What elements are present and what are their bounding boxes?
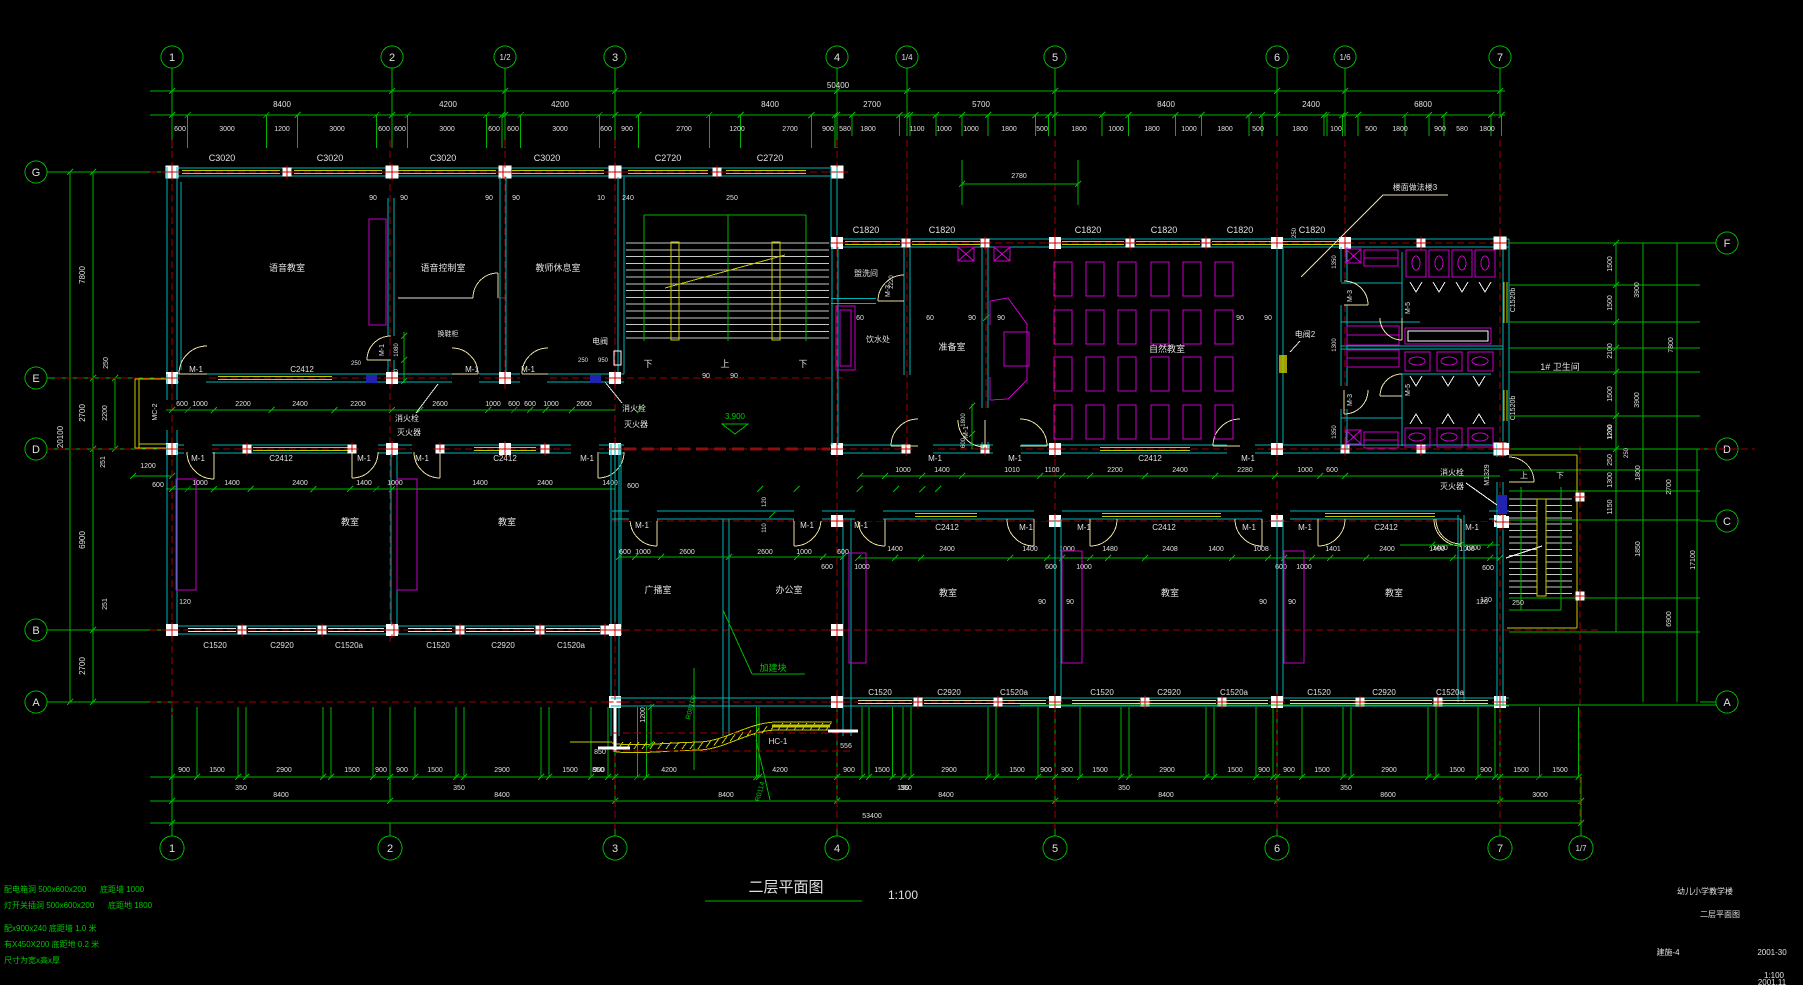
- svg-text:上: 上: [1520, 471, 1528, 480]
- svg-text:120: 120: [1480, 597, 1492, 604]
- svg-text:6: 6: [1274, 843, 1280, 855]
- svg-text:4: 4: [834, 843, 840, 855]
- svg-text:C2412: C2412: [269, 454, 293, 463]
- svg-text:3000: 3000: [1532, 792, 1548, 799]
- svg-text:C1520a: C1520a: [335, 641, 364, 650]
- svg-text:M-1: M-1: [1008, 454, 1022, 463]
- svg-text:1300: 1300: [1332, 338, 1338, 352]
- svg-text:M-1: M-1: [1242, 523, 1256, 532]
- svg-text:1500: 1500: [1314, 767, 1330, 774]
- svg-text:350: 350: [235, 785, 247, 792]
- svg-text:1100: 1100: [1044, 467, 1059, 474]
- svg-text:5: 5: [1052, 843, 1058, 855]
- svg-text:C2720: C2720: [757, 153, 784, 163]
- svg-text:251: 251: [100, 456, 107, 468]
- svg-text:1300: 1300: [1607, 472, 1614, 488]
- svg-text:D: D: [1723, 444, 1731, 456]
- svg-text:350: 350: [1118, 785, 1130, 792]
- svg-text:350: 350: [1340, 785, 1352, 792]
- svg-text:底距地 1800: 底距地 1800: [108, 900, 153, 910]
- svg-text:250: 250: [1292, 227, 1298, 238]
- svg-text:250: 250: [726, 195, 738, 202]
- svg-text:尺寸为宽x高x厚: 尺寸为宽x高x厚: [4, 955, 60, 965]
- svg-text:1000: 1000: [1465, 545, 1481, 552]
- svg-text:1400: 1400: [224, 480, 240, 487]
- svg-text:2600: 2600: [432, 401, 448, 408]
- svg-text:4200: 4200: [439, 100, 457, 109]
- svg-text:600: 600: [174, 126, 186, 133]
- svg-text:50400: 50400: [827, 81, 850, 90]
- svg-text:2200: 2200: [102, 405, 109, 421]
- svg-text:1000: 1000: [854, 564, 870, 571]
- svg-text:1000: 1000: [895, 467, 911, 474]
- svg-text:120: 120: [762, 496, 768, 507]
- svg-text:C1820: C1820: [853, 225, 880, 235]
- svg-text:C2920: C2920: [270, 641, 294, 650]
- svg-text:C1520: C1520: [203, 641, 227, 650]
- svg-text:850: 850: [592, 767, 604, 774]
- svg-text:3900: 3900: [1634, 282, 1641, 298]
- svg-text:1/6: 1/6: [1339, 53, 1351, 62]
- svg-text:1400: 1400: [472, 480, 488, 487]
- svg-text:楼面做法楼3: 楼面做法楼3: [1393, 182, 1438, 192]
- svg-text:M-1: M-1: [963, 426, 970, 438]
- svg-text:教室: 教室: [1385, 587, 1403, 598]
- svg-text:C2412: C2412: [1138, 454, 1162, 463]
- svg-text:M-1: M-1: [415, 454, 429, 463]
- svg-text:1200: 1200: [640, 707, 647, 723]
- svg-text:580: 580: [1456, 126, 1468, 133]
- svg-text:教室: 教室: [341, 516, 359, 527]
- svg-text:600: 600: [961, 437, 967, 448]
- svg-text:F: F: [1724, 238, 1731, 250]
- svg-text:换鞋柜: 换鞋柜: [438, 329, 459, 338]
- svg-text:900: 900: [621, 126, 633, 133]
- svg-text:3000: 3000: [219, 126, 235, 133]
- svg-text:900: 900: [1040, 767, 1052, 774]
- svg-text:1500: 1500: [209, 767, 225, 774]
- svg-text:3.900: 3.900: [725, 412, 746, 421]
- svg-text:2900: 2900: [1381, 767, 1397, 774]
- svg-text:M-1: M-1: [854, 521, 868, 530]
- svg-text:90: 90: [730, 373, 738, 380]
- svg-text:20100: 20100: [56, 425, 65, 448]
- svg-text:1: 1: [169, 843, 175, 855]
- svg-text:教师休息室: 教师休息室: [535, 262, 580, 273]
- svg-text:1:100: 1:100: [888, 888, 918, 902]
- svg-text:900: 900: [1480, 767, 1492, 774]
- svg-text:8400: 8400: [273, 100, 291, 109]
- svg-text:4200: 4200: [772, 767, 788, 774]
- svg-text:2400: 2400: [537, 480, 553, 487]
- svg-text:M1329: M1329: [1484, 464, 1491, 486]
- svg-text:配x900x240 底距墙 1.0 米: 配x900x240 底距墙 1.0 米: [4, 923, 96, 933]
- svg-text:1200: 1200: [729, 126, 745, 133]
- svg-text:1400: 1400: [1022, 546, 1038, 553]
- svg-text:建施-4: 建施-4: [1656, 947, 1680, 957]
- svg-text:600: 600: [508, 401, 520, 408]
- svg-text:灯开关插洞 500x600x200: 灯开关插洞 500x600x200: [4, 900, 95, 910]
- svg-text:1800: 1800: [1292, 126, 1308, 133]
- svg-text:消火栓: 消火栓: [395, 413, 419, 423]
- svg-text:8400: 8400: [1158, 792, 1174, 799]
- svg-text:7: 7: [1497, 843, 1503, 855]
- svg-text:4200: 4200: [661, 767, 677, 774]
- svg-text:2: 2: [389, 52, 395, 64]
- svg-text:幼儿小学教学楼: 幼儿小学教学楼: [1677, 886, 1733, 896]
- svg-text:2780: 2780: [1011, 173, 1027, 180]
- svg-text:90: 90: [1066, 599, 1074, 606]
- svg-text:盥洗间: 盥洗间: [854, 268, 878, 278]
- svg-text:有X450X200 底距地 0.2 米: 有X450X200 底距地 0.2 米: [4, 939, 99, 949]
- svg-text:C1820: C1820: [1075, 225, 1102, 235]
- svg-text:2700: 2700: [78, 404, 87, 422]
- svg-text:C2920: C2920: [1372, 688, 1396, 697]
- svg-text:150: 150: [897, 785, 909, 792]
- svg-text:6: 6: [1274, 52, 1280, 64]
- svg-text:灭火器: 灭火器: [397, 428, 421, 437]
- svg-text:1400: 1400: [934, 467, 950, 474]
- svg-text:E: E: [32, 373, 39, 385]
- svg-text:1500: 1500: [427, 767, 443, 774]
- svg-text:7800: 7800: [78, 266, 87, 284]
- svg-text:600: 600: [627, 483, 639, 490]
- svg-text:M-1: M-1: [800, 521, 814, 530]
- svg-text:2700: 2700: [782, 126, 798, 133]
- svg-text:900: 900: [1283, 767, 1295, 774]
- svg-text:2900: 2900: [494, 767, 510, 774]
- svg-text:C3020: C3020: [209, 153, 236, 163]
- svg-text:556: 556: [840, 743, 852, 750]
- svg-text:自然教室: 自然教室: [1149, 343, 1185, 354]
- svg-text:C1520a: C1520a: [557, 641, 586, 650]
- svg-text:G: G: [32, 167, 41, 179]
- svg-text:1000: 1000: [192, 401, 208, 408]
- svg-text:100: 100: [1330, 126, 1342, 133]
- svg-text:1# 卫生间: 1# 卫生间: [1540, 361, 1580, 372]
- svg-text:C1820: C1820: [1151, 225, 1178, 235]
- svg-text:底距墙 1000: 底距墙 1000: [100, 884, 145, 894]
- svg-text:M-3: M-3: [1347, 290, 1354, 302]
- svg-text:90: 90: [968, 315, 976, 322]
- svg-text:饮水处: 饮水处: [866, 334, 890, 344]
- svg-text:M-1: M-1: [379, 344, 386, 356]
- svg-text:2200: 2200: [350, 401, 366, 408]
- svg-text:M-1: M-1: [1019, 523, 1033, 532]
- svg-text:C1520b: C1520b: [1510, 396, 1517, 421]
- svg-text:1500: 1500: [1513, 767, 1529, 774]
- svg-text:1150: 1150: [1607, 499, 1614, 514]
- svg-text:950: 950: [598, 358, 609, 364]
- svg-text:M-1: M-1: [1465, 523, 1479, 532]
- svg-text:2400: 2400: [1172, 467, 1188, 474]
- svg-text:灭火器: 灭火器: [624, 420, 648, 429]
- svg-text:1500: 1500: [1009, 767, 1025, 774]
- svg-text:C2412: C2412: [1374, 523, 1398, 532]
- svg-text:二层平面图: 二层平面图: [748, 879, 823, 896]
- svg-text:M-3: M-3: [1347, 394, 1354, 406]
- svg-text:HC-1: HC-1: [769, 737, 788, 746]
- svg-text:1010: 1010: [1004, 467, 1020, 474]
- svg-text:250: 250: [351, 361, 362, 367]
- svg-text:8400: 8400: [1157, 100, 1175, 109]
- svg-text:1500: 1500: [1552, 767, 1568, 774]
- svg-text:1400: 1400: [356, 480, 372, 487]
- svg-text:6800: 6800: [1414, 100, 1432, 109]
- svg-text:500: 500: [1036, 126, 1048, 133]
- svg-text:1000: 1000: [963, 126, 979, 133]
- svg-text:下: 下: [643, 359, 652, 369]
- svg-text:8400: 8400: [761, 100, 779, 109]
- svg-text:90: 90: [369, 195, 377, 202]
- svg-text:900: 900: [843, 767, 855, 774]
- svg-text:M-1: M-1: [1077, 523, 1091, 532]
- svg-text:C1520b: C1520b: [1510, 288, 1517, 313]
- svg-text:1800: 1800: [1144, 126, 1160, 133]
- svg-text:1401: 1401: [1325, 546, 1341, 553]
- svg-text:2200: 2200: [1107, 467, 1123, 474]
- svg-text:240: 240: [622, 195, 634, 202]
- svg-text:B: B: [32, 625, 39, 637]
- svg-text:语音控制室: 语音控制室: [420, 262, 465, 273]
- svg-text:C1520: C1520: [1090, 688, 1114, 697]
- svg-text:1400: 1400: [1208, 546, 1224, 553]
- svg-text:6900: 6900: [78, 531, 87, 549]
- svg-text:C1820: C1820: [1227, 225, 1254, 235]
- svg-text:1500: 1500: [1607, 256, 1614, 272]
- svg-text:A: A: [32, 697, 40, 709]
- svg-text:90: 90: [1259, 599, 1267, 606]
- svg-text:90: 90: [512, 195, 520, 202]
- svg-text:1/7: 1/7: [1575, 844, 1587, 853]
- svg-text:900: 900: [822, 126, 834, 133]
- svg-text:3: 3: [612, 52, 618, 64]
- svg-text:500: 500: [1365, 126, 1377, 133]
- svg-text:C1520a: C1520a: [1220, 688, 1249, 697]
- svg-text:C1520: C1520: [426, 641, 450, 650]
- svg-text:C1520a: C1520a: [1436, 688, 1465, 697]
- svg-text:C2720: C2720: [655, 153, 682, 163]
- svg-text:C1820: C1820: [929, 225, 956, 235]
- svg-text:MC-2: MC-2: [152, 403, 159, 420]
- svg-text:办公室: 办公室: [775, 584, 802, 595]
- svg-text:2400: 2400: [1379, 546, 1395, 553]
- svg-text:2001.11: 2001.11: [1758, 978, 1787, 985]
- svg-text:10: 10: [597, 195, 605, 202]
- svg-text:1800: 1800: [860, 126, 876, 133]
- svg-text:1400: 1400: [602, 480, 618, 487]
- svg-text:C2920: C2920: [1157, 688, 1181, 697]
- svg-text:1500: 1500: [1607, 386, 1614, 402]
- svg-text:C1520: C1520: [868, 688, 892, 697]
- svg-text:900: 900: [375, 767, 387, 774]
- svg-text:M-1: M-1: [635, 521, 649, 530]
- svg-text:1400: 1400: [1432, 545, 1448, 552]
- svg-text:1/4: 1/4: [901, 53, 913, 62]
- svg-text:1200: 1200: [1608, 425, 1614, 439]
- svg-text:60: 60: [856, 315, 864, 322]
- svg-text:M-1: M-1: [928, 454, 942, 463]
- svg-text:电阀: 电阀: [592, 336, 608, 346]
- svg-text:7800: 7800: [1668, 337, 1675, 353]
- svg-text:2600: 2600: [679, 549, 695, 556]
- svg-text:灭火器: 灭火器: [1440, 482, 1464, 491]
- svg-text:600: 600: [1326, 467, 1338, 474]
- svg-text:1800: 1800: [1479, 126, 1495, 133]
- svg-text:M-1: M-1: [191, 454, 205, 463]
- svg-text:1200: 1200: [140, 463, 156, 470]
- svg-text:5700: 5700: [972, 100, 990, 109]
- svg-text:850: 850: [594, 749, 606, 756]
- svg-text:2408: 2408: [1162, 546, 1178, 553]
- svg-text:1000: 1000: [1108, 126, 1124, 133]
- svg-text:600: 600: [507, 126, 519, 133]
- svg-text:M-1: M-1: [1241, 454, 1255, 463]
- svg-text:3: 3: [612, 843, 618, 855]
- svg-text:2: 2: [387, 843, 393, 855]
- svg-text:600: 600: [524, 401, 536, 408]
- svg-text:C1820: C1820: [1299, 225, 1326, 235]
- svg-text:1800: 1800: [1001, 126, 1017, 133]
- svg-text:250: 250: [1607, 454, 1614, 466]
- svg-text:1000: 1000: [543, 401, 559, 408]
- svg-text:90: 90: [1236, 315, 1244, 322]
- svg-text:教室: 教室: [498, 516, 516, 527]
- svg-text:1500: 1500: [1092, 767, 1108, 774]
- svg-text:1500: 1500: [1607, 295, 1614, 311]
- svg-text:5: 5: [1052, 52, 1058, 64]
- svg-text:900: 900: [1061, 767, 1073, 774]
- svg-text:580: 580: [839, 126, 851, 133]
- svg-text:250: 250: [103, 357, 110, 369]
- svg-text:C2920: C2920: [937, 688, 961, 697]
- svg-text:C3020: C3020: [317, 153, 344, 163]
- svg-text:M-5: M-5: [1405, 384, 1412, 396]
- svg-text:4: 4: [834, 52, 840, 64]
- svg-text:900: 900: [1258, 767, 1270, 774]
- svg-text:1500: 1500: [562, 767, 578, 774]
- svg-text:1008: 1008: [1253, 546, 1269, 553]
- svg-text:110: 110: [762, 523, 768, 533]
- svg-text:1480: 1480: [1102, 546, 1118, 553]
- svg-text:1500: 1500: [1449, 767, 1465, 774]
- svg-text:8400: 8400: [938, 792, 954, 799]
- svg-text:准备室: 准备室: [938, 341, 965, 352]
- svg-text:6900: 6900: [1666, 611, 1673, 627]
- svg-text:1800: 1800: [1635, 465, 1642, 481]
- svg-text:教室: 教室: [939, 587, 957, 598]
- svg-text:4200: 4200: [551, 100, 569, 109]
- svg-text:2200: 2200: [235, 401, 251, 408]
- svg-text:2001-30: 2001-30: [1757, 948, 1787, 957]
- svg-text:8400: 8400: [494, 792, 510, 799]
- svg-text:2280: 2280: [1237, 467, 1253, 474]
- svg-text:1000: 1000: [1181, 126, 1197, 133]
- svg-text:2400: 2400: [939, 546, 955, 553]
- svg-text:251: 251: [102, 598, 109, 610]
- svg-text:加建块: 加建块: [759, 662, 786, 673]
- svg-text:90: 90: [1038, 599, 1046, 606]
- svg-text:1/2: 1/2: [499, 53, 511, 62]
- svg-text:120: 120: [179, 599, 191, 606]
- svg-text:90: 90: [702, 373, 710, 380]
- svg-text:A: A: [1723, 697, 1731, 709]
- svg-text:M-1: M-1: [189, 365, 203, 374]
- svg-text:1500: 1500: [344, 767, 360, 774]
- svg-text:1000: 1000: [387, 480, 403, 487]
- svg-text:2400: 2400: [292, 401, 308, 408]
- svg-text:1500: 1500: [874, 767, 890, 774]
- svg-text:2600: 2600: [576, 401, 592, 408]
- svg-text:1000: 1000: [485, 401, 501, 408]
- svg-text:1400: 1400: [887, 546, 903, 553]
- svg-text:1800: 1800: [1392, 126, 1408, 133]
- svg-text:C2412: C2412: [935, 523, 959, 532]
- svg-text:90: 90: [1288, 599, 1296, 606]
- svg-text:600: 600: [378, 126, 390, 133]
- svg-text:1500: 1500: [1227, 767, 1243, 774]
- svg-text:8400: 8400: [273, 792, 289, 799]
- svg-text:1100: 1100: [909, 126, 924, 133]
- svg-text:2700: 2700: [676, 126, 692, 133]
- svg-text:1800: 1800: [961, 413, 967, 427]
- svg-text:250: 250: [578, 358, 589, 364]
- svg-text:下: 下: [798, 359, 807, 369]
- svg-text:C3020: C3020: [430, 153, 457, 163]
- svg-text:60: 60: [926, 315, 934, 322]
- svg-text:上: 上: [720, 359, 729, 369]
- svg-text:90: 90: [400, 195, 408, 202]
- svg-text:C2412: C2412: [290, 365, 314, 374]
- svg-text:教室: 教室: [1161, 587, 1179, 598]
- svg-text:二层平面图: 二层平面图: [1700, 910, 1740, 919]
- svg-text:2700: 2700: [78, 657, 87, 675]
- svg-text:语音教室: 语音教室: [269, 262, 305, 273]
- svg-text:600: 600: [837, 549, 849, 556]
- svg-text:D: D: [32, 444, 40, 456]
- svg-text:600: 600: [176, 401, 188, 408]
- svg-text:M-1: M-1: [1298, 523, 1312, 532]
- svg-text:2900: 2900: [941, 767, 957, 774]
- svg-text:1080: 1080: [394, 343, 400, 357]
- svg-text:90: 90: [1264, 315, 1272, 322]
- svg-text:2900: 2900: [1159, 767, 1175, 774]
- svg-text:配电箱洞 500x600x200: 配电箱洞 500x600x200: [4, 884, 87, 894]
- svg-text:350: 350: [453, 785, 465, 792]
- svg-text:2400: 2400: [1302, 100, 1320, 109]
- svg-text:C2412: C2412: [1152, 523, 1176, 532]
- svg-text:2400: 2400: [292, 480, 308, 487]
- svg-text:8400: 8400: [718, 792, 734, 799]
- svg-text:3900: 3900: [1634, 392, 1641, 408]
- svg-text:1: 1: [169, 52, 175, 64]
- svg-text:600: 600: [488, 126, 500, 133]
- svg-text:M-1: M-1: [357, 454, 371, 463]
- svg-text:600: 600: [394, 126, 406, 133]
- svg-text:1000: 1000: [192, 480, 208, 487]
- svg-text:1800: 1800: [1071, 126, 1087, 133]
- svg-text:90: 90: [485, 195, 493, 202]
- svg-text:500: 500: [1252, 126, 1264, 133]
- svg-text:C1520a: C1520a: [1000, 688, 1029, 697]
- svg-text:3000: 3000: [329, 126, 345, 133]
- svg-text:2700: 2700: [1666, 479, 1673, 495]
- svg-text:电阀2: 电阀2: [1295, 329, 1316, 339]
- svg-text:C2920: C2920: [491, 641, 515, 650]
- svg-text:600: 600: [600, 126, 612, 133]
- svg-text:1000: 1000: [1076, 564, 1092, 571]
- svg-text:C1520: C1520: [1307, 688, 1331, 697]
